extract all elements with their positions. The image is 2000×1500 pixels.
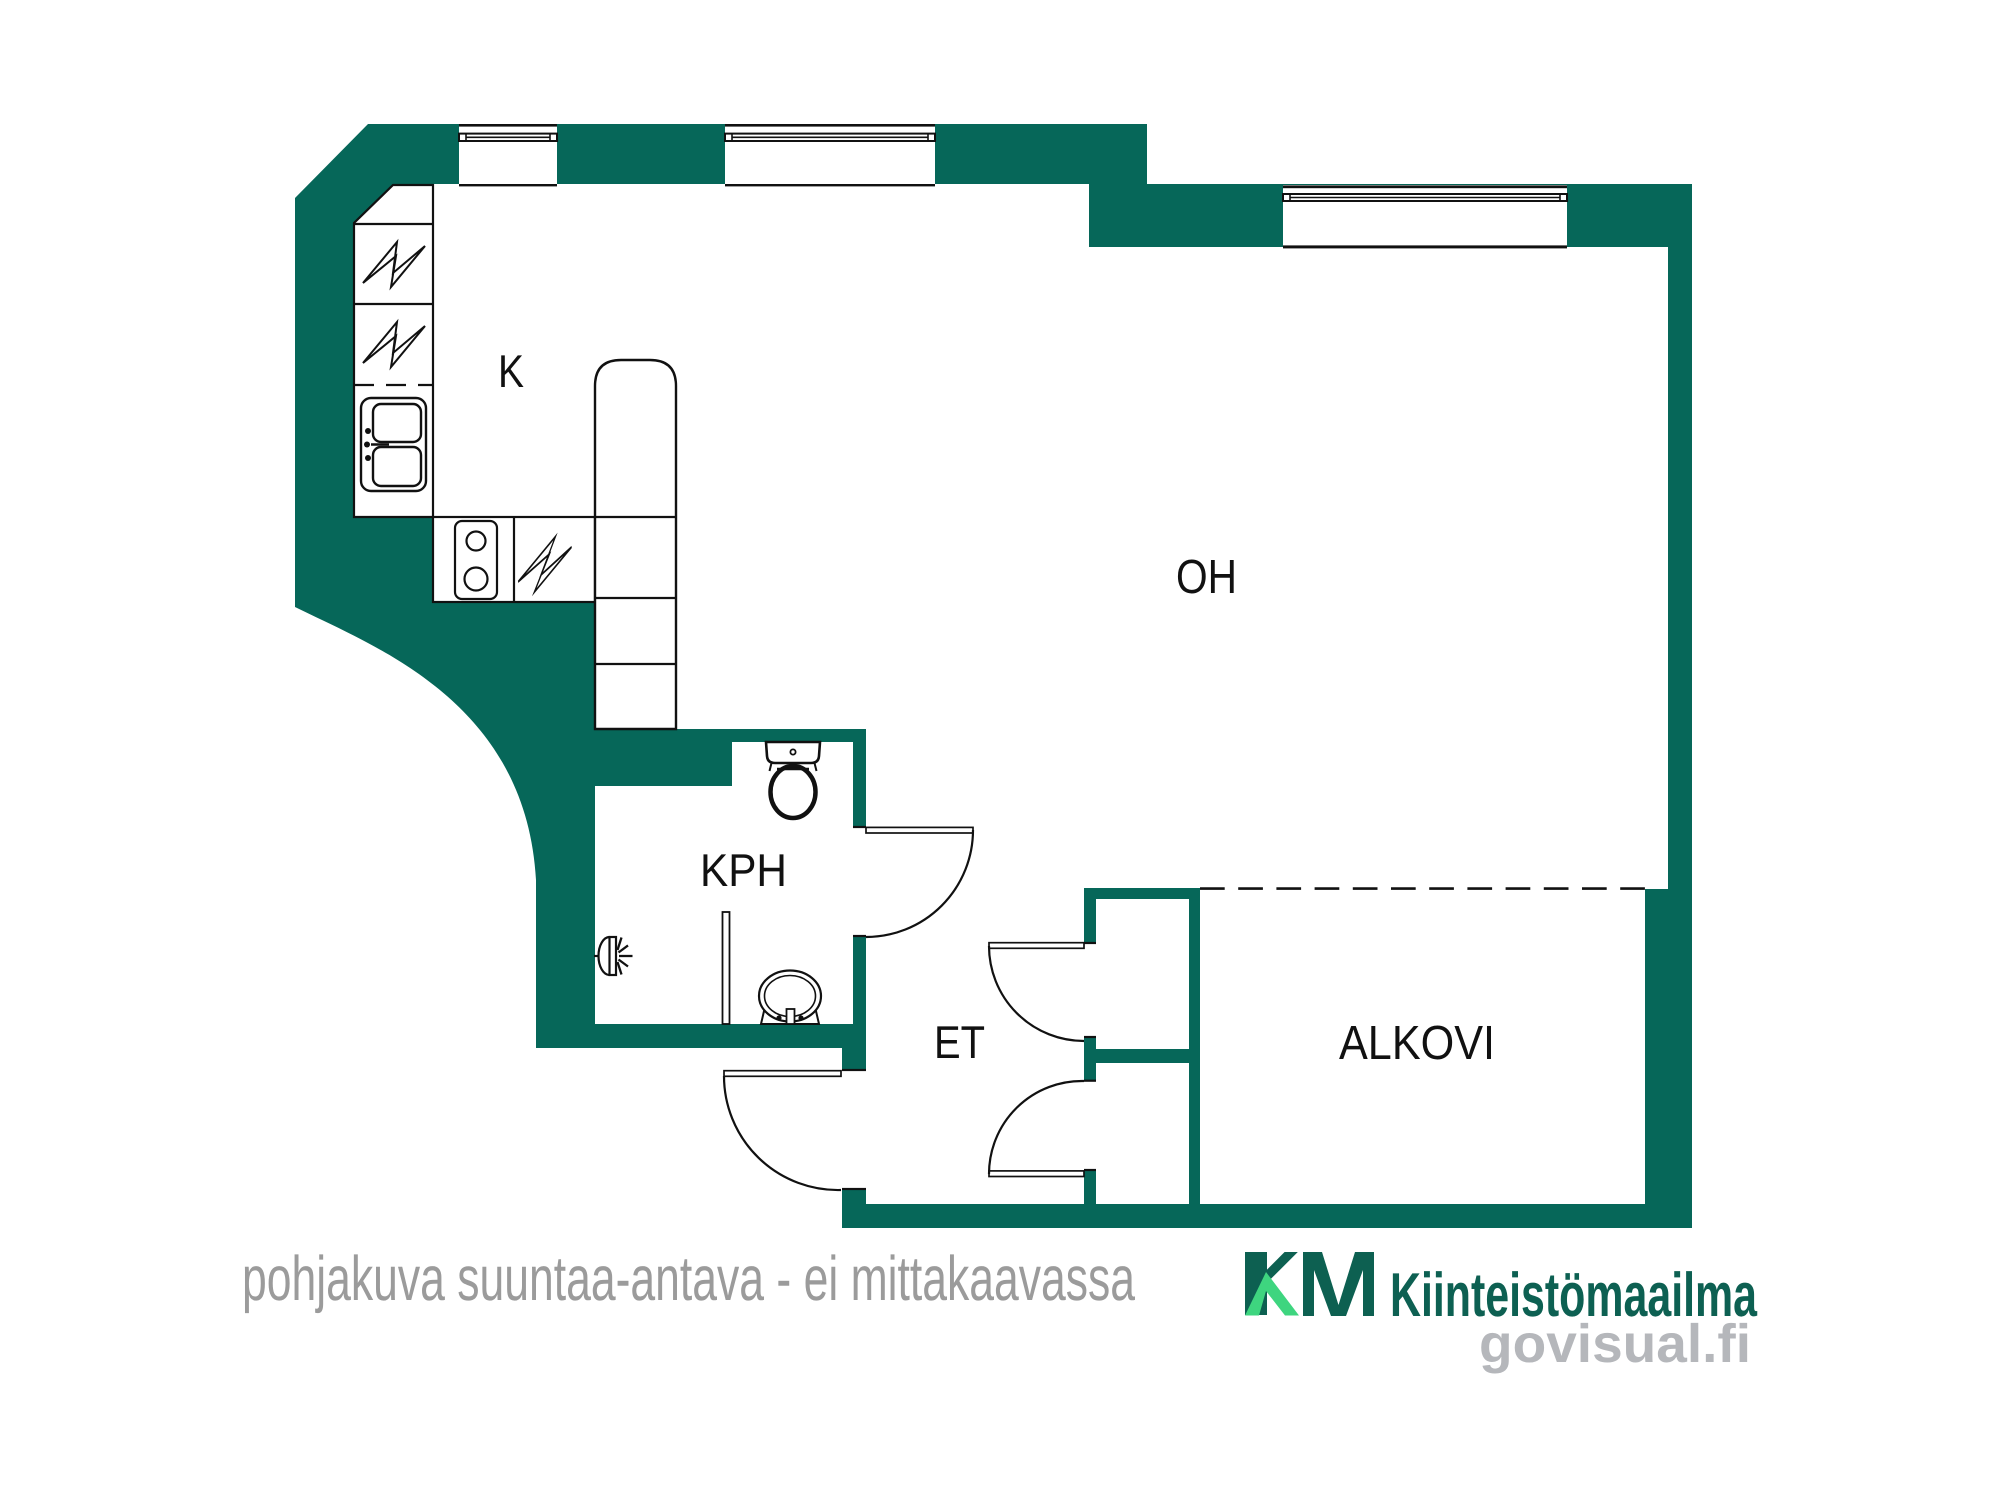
svg-text:OH: OH <box>1176 551 1237 604</box>
svg-text:govisual.fi: govisual.fi <box>1479 1314 1751 1374</box>
svg-text:KPH: KPH <box>700 844 787 896</box>
svg-text:ET: ET <box>934 1016 985 1068</box>
svg-text:K: K <box>498 345 524 397</box>
svg-text:pohjakuva suuntaa-antava - ei: pohjakuva suuntaa-antava - ei mittakaava… <box>242 1244 1136 1314</box>
svg-text:ALKOVI: ALKOVI <box>1339 1017 1495 1070</box>
